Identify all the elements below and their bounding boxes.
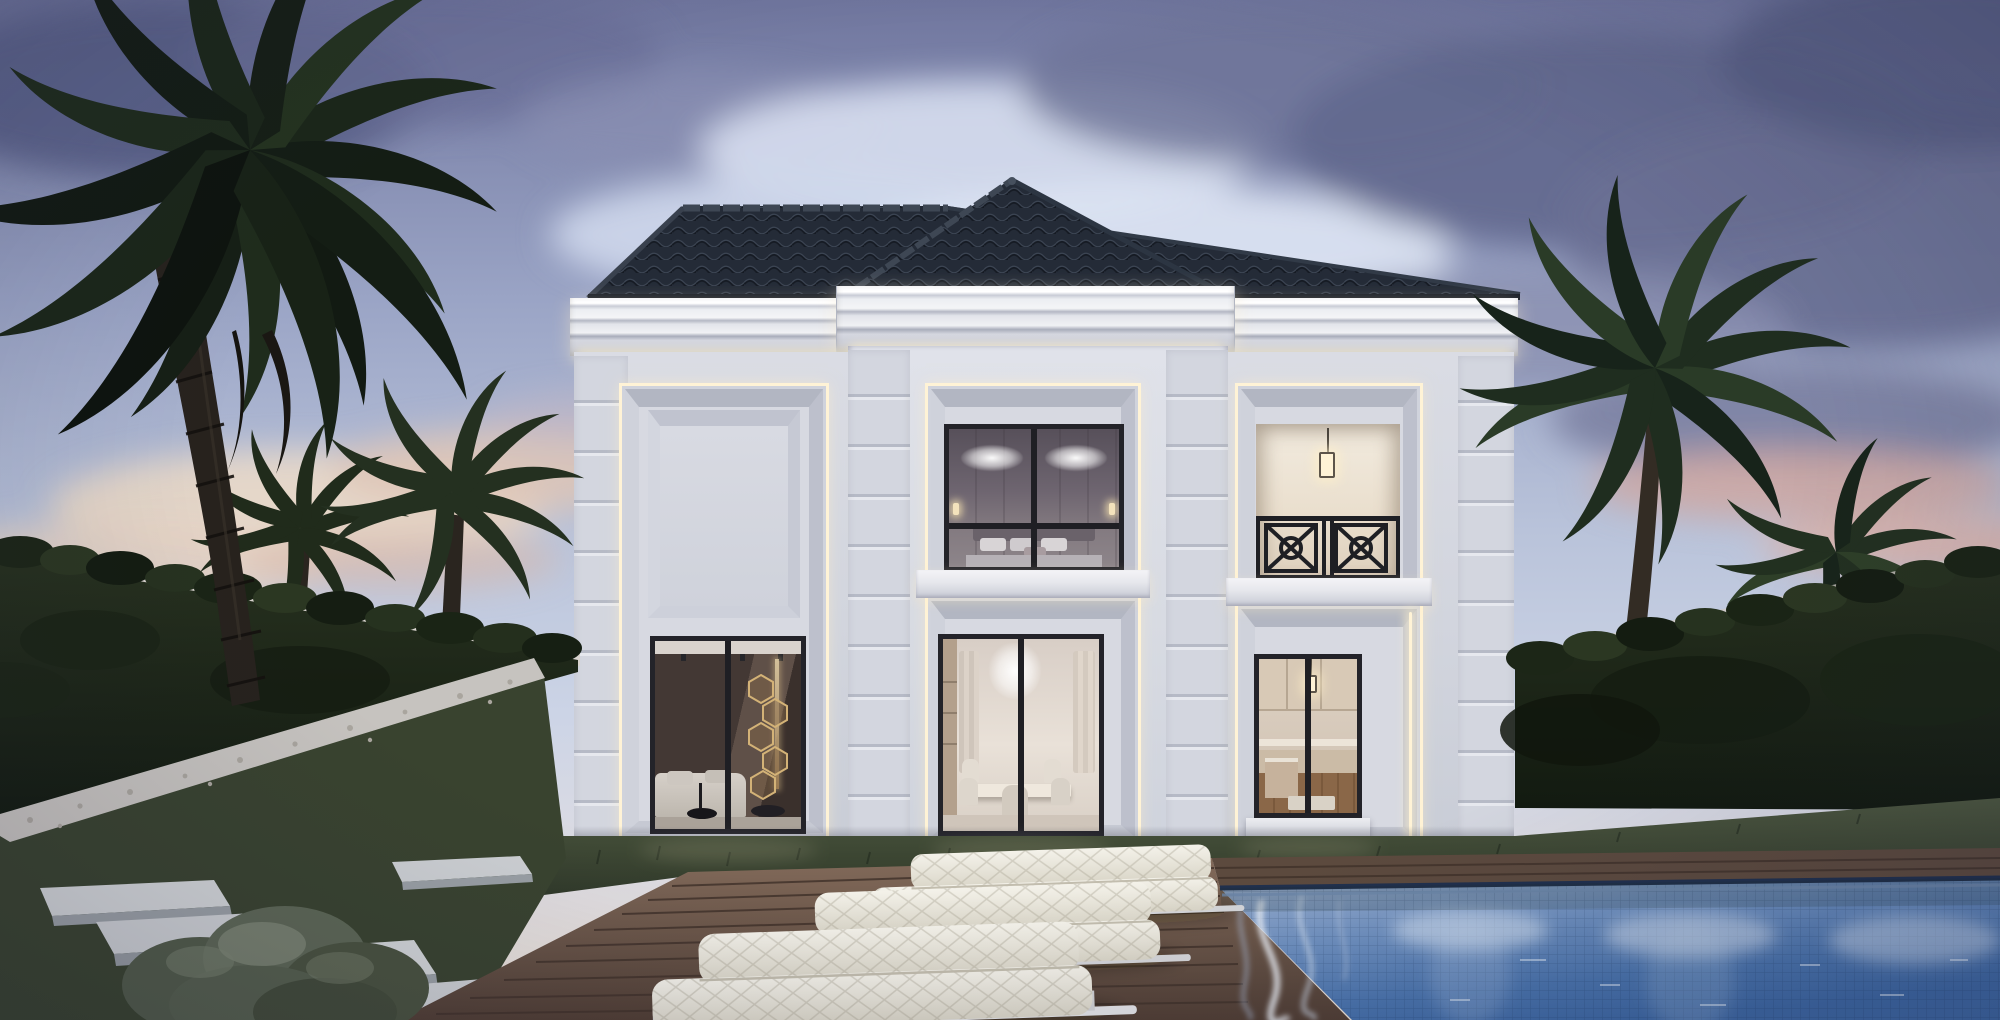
swimming-pool — [1220, 878, 2000, 1020]
hanging-frond — [228, 330, 244, 470]
palm-canopy — [0, 0, 504, 466]
foreground-layer — [0, 0, 2000, 1020]
villa-rendering — [0, 0, 2000, 1020]
palm-tree-foreground-left — [0, 0, 504, 706]
